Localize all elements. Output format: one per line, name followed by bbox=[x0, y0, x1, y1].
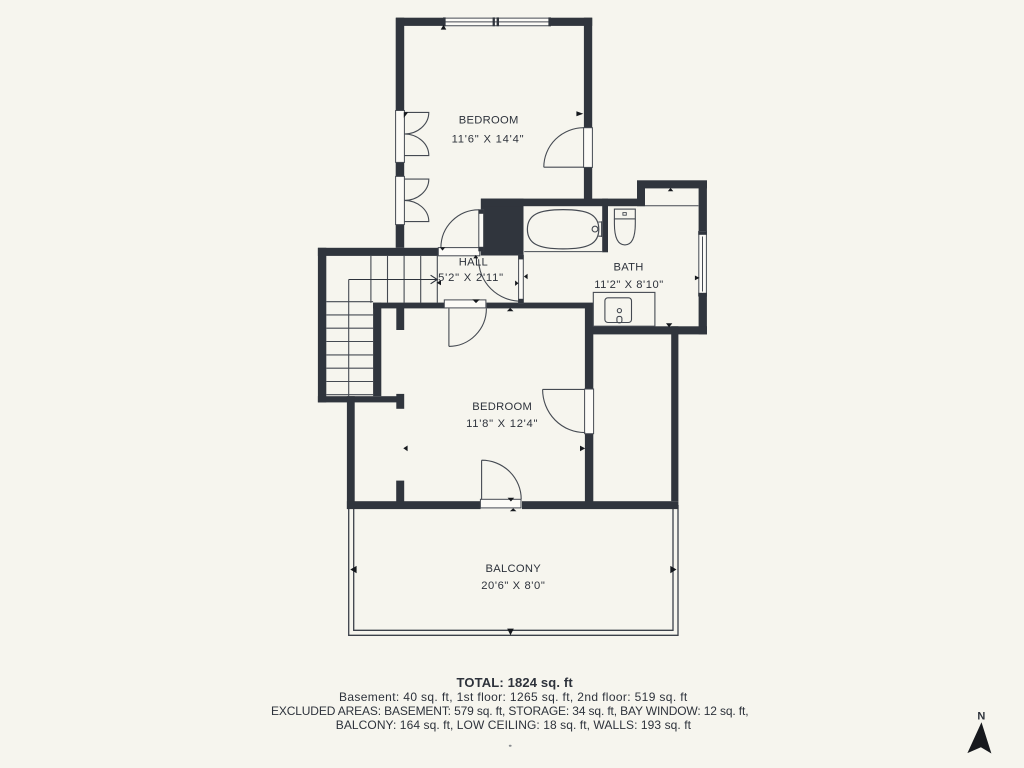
svg-text:HALL: HALL bbox=[459, 256, 488, 268]
svg-text:11'6" X 14'4": 11'6" X 14'4" bbox=[452, 134, 525, 146]
svg-text:BEDROOM: BEDROOM bbox=[459, 115, 519, 127]
svg-text:Basement: 40 sq. ft, 1st floor: Basement: 40 sq. ft, 1st floor: 1265 sq.… bbox=[339, 690, 688, 704]
svg-text:BALCONY: BALCONY bbox=[486, 563, 542, 575]
svg-text:11'2" X 8'10": 11'2" X 8'10" bbox=[594, 279, 664, 291]
svg-text:BATH: BATH bbox=[613, 261, 643, 273]
svg-text:EXCLUDED AREAS: BASEMENT: 579: EXCLUDED AREAS: BASEMENT: 579 sq. ft, ST… bbox=[271, 704, 748, 718]
svg-text:N: N bbox=[977, 711, 985, 723]
svg-text:BEDROOM: BEDROOM bbox=[472, 401, 532, 413]
svg-text:TOTAL: 1824 sq. ft: TOTAL: 1824 sq. ft bbox=[457, 675, 574, 690]
svg-text:20'6" X 8'0": 20'6" X 8'0" bbox=[481, 580, 545, 592]
svg-text:11'8" X 12'4": 11'8" X 12'4" bbox=[466, 418, 538, 430]
svg-text:BALCONY: 164 sq. ft, LOW CEILI: BALCONY: 164 sq. ft, LOW CEILING: 18 sq.… bbox=[336, 718, 692, 732]
svg-text:5'2" X 2'11": 5'2" X 2'11" bbox=[438, 272, 504, 284]
